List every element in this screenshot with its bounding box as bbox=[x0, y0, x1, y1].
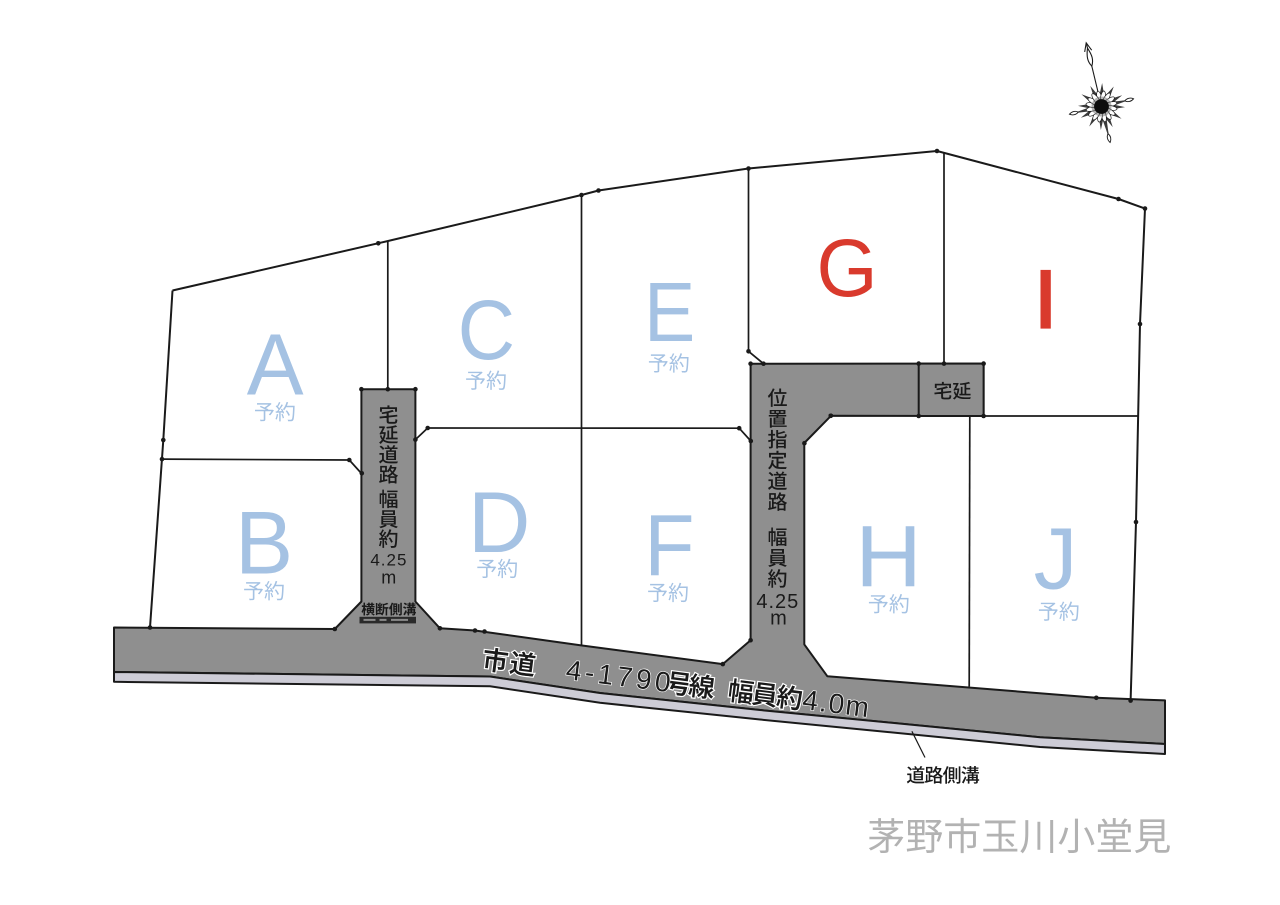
svg-text:C: C bbox=[458, 284, 515, 378]
svg-text:G: G bbox=[816, 222, 877, 314]
svg-text:H: H bbox=[855, 508, 922, 605]
svg-text:m: m bbox=[770, 608, 787, 630]
svg-text:J: J bbox=[1034, 511, 1078, 608]
svg-text:A: A bbox=[247, 317, 304, 414]
svg-text:E: E bbox=[644, 266, 695, 360]
svg-text:D: D bbox=[468, 475, 530, 571]
svg-text:m: m bbox=[381, 568, 396, 588]
svg-text:4.25: 4.25 bbox=[370, 550, 407, 569]
svg-text:B: B bbox=[235, 493, 293, 593]
svg-text:F: F bbox=[644, 496, 694, 594]
